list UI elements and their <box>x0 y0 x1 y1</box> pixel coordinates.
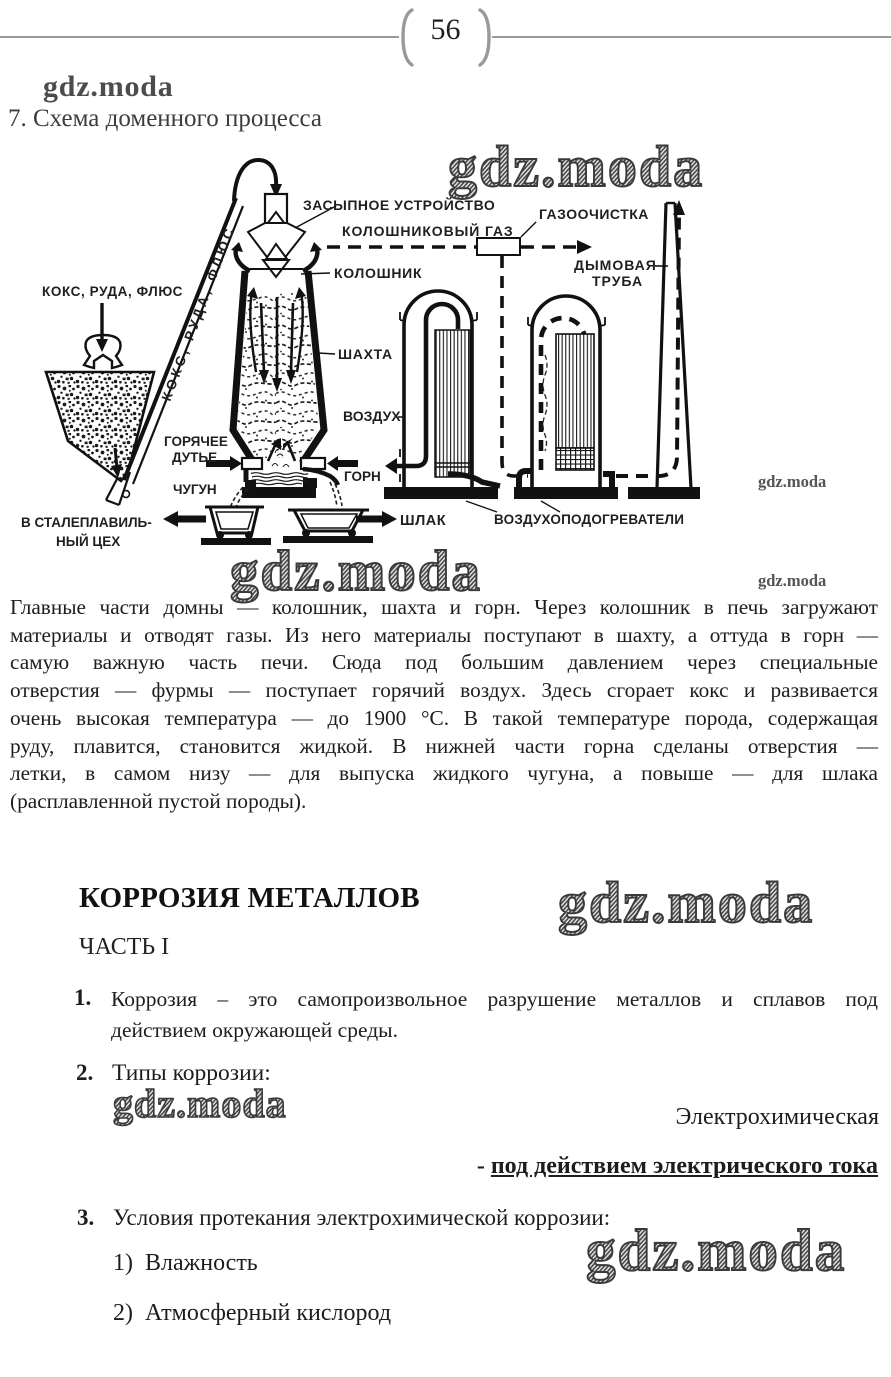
svg-text:НЫЙ ЦЕХ: НЫЙ ЦЕХ <box>56 534 120 549</box>
svg-text:ТРУБА: ТРУБА <box>592 273 643 289</box>
svg-text:ГАЗООЧИСТКА: ГАЗООЧИСТКА <box>539 206 649 222</box>
svg-text:ДЫМОВАЯ: ДЫМОВАЯ <box>574 257 657 273</box>
svg-text:gdz.moda: gdz.moda <box>448 136 704 199</box>
svg-text:ЧУГУН: ЧУГУН <box>173 482 217 497</box>
svg-text:ДУТЬЕ: ДУТЬЕ <box>172 450 217 465</box>
svg-text:ВОЗДУХОПОДОГРЕВАТЕЛИ: ВОЗДУХОПОДОГРЕВАТЕЛИ <box>494 512 684 527</box>
svg-text:ШАХТА: ШАХТА <box>338 346 393 362</box>
svg-text:КОЛОШНИКОВЫЙ ГАЗ: КОЛОШНИКОВЫЙ ГАЗ <box>342 222 514 239</box>
svg-text:В СТАЛЕПЛАВИЛЬ-: В СТАЛЕПЛАВИЛЬ- <box>21 515 152 530</box>
svg-text:ГОРН: ГОРН <box>344 469 381 484</box>
svg-text:gdz.moda: gdz.moda <box>558 870 814 935</box>
svg-text:ВОЗДУХ: ВОЗДУХ <box>343 408 401 424</box>
svg-text:КОКС, РУДА, ФЛЮС: КОКС, РУДА, ФЛЮС <box>42 284 183 299</box>
svg-text:gdz.moda: gdz.moda <box>113 1081 287 1126</box>
svg-text:КОЛОШНИК: КОЛОШНИК <box>334 265 422 281</box>
svg-text:ШЛАК: ШЛАК <box>400 513 446 529</box>
svg-text:gdz.moda: gdz.moda <box>586 1218 846 1283</box>
svg-text:КОКС, РУДА, ФЛЮС: КОКС, РУДА, ФЛЮС <box>159 224 238 403</box>
svg-text:ГОРЯЧЕЕ: ГОРЯЧЕЕ <box>164 434 228 449</box>
